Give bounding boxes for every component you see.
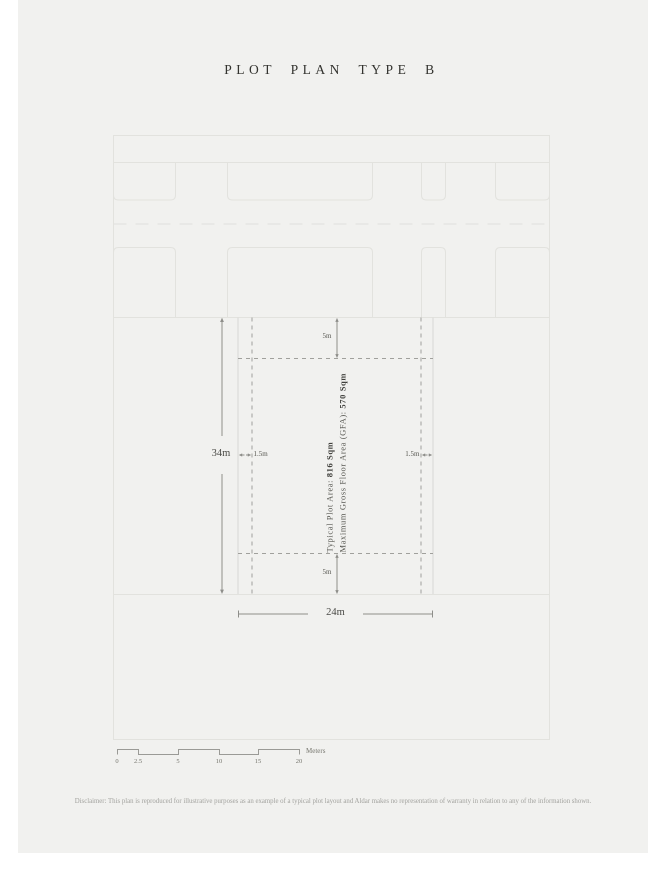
plot-area-line2-label: Maximum Gross Floor Area (GFA): bbox=[337, 409, 347, 553]
plot-area-line2-value: 570 Sqm bbox=[337, 373, 347, 409]
scale-unit-label: Meters bbox=[306, 747, 325, 755]
plot-area-text: Typical Plot Area: 816 Sqm Maximum Gross… bbox=[324, 342, 350, 553]
plot-area-line2: Maximum Gross Floor Area (GFA): 570 Sqm bbox=[336, 342, 349, 553]
scale-tick-label: 10 bbox=[216, 758, 223, 766]
plot-area-line1: Typical Plot Area: 816 Sqm bbox=[324, 342, 337, 553]
setback-label-right: 1.5m bbox=[405, 450, 419, 459]
scale-bar-glyph bbox=[118, 750, 300, 755]
dimension-label-height: 34m bbox=[212, 448, 231, 460]
setback-label-rear: 5m bbox=[323, 568, 332, 577]
setback-label-front: 5m bbox=[323, 332, 332, 341]
scale-tick-label: 15 bbox=[255, 758, 262, 766]
page: PLOT PLAN TYPE B bbox=[0, 0, 672, 874]
scale-tick-label: 5 bbox=[176, 758, 179, 766]
setback-label-left: 1.5m bbox=[254, 450, 268, 459]
scale-tick-label: 20 bbox=[296, 758, 303, 766]
disclaimer-text: Disclaimer: This plan is reproduced for … bbox=[18, 797, 648, 806]
dimension-label-width: 24m bbox=[326, 607, 345, 619]
plot-area-line1-value: 816 Sqm bbox=[325, 442, 335, 478]
scale-tick-label: 0 bbox=[115, 758, 118, 766]
scale-tick-label: 2.5 bbox=[134, 758, 142, 766]
plot-area-line1-label: Typical Plot Area: bbox=[325, 477, 335, 552]
